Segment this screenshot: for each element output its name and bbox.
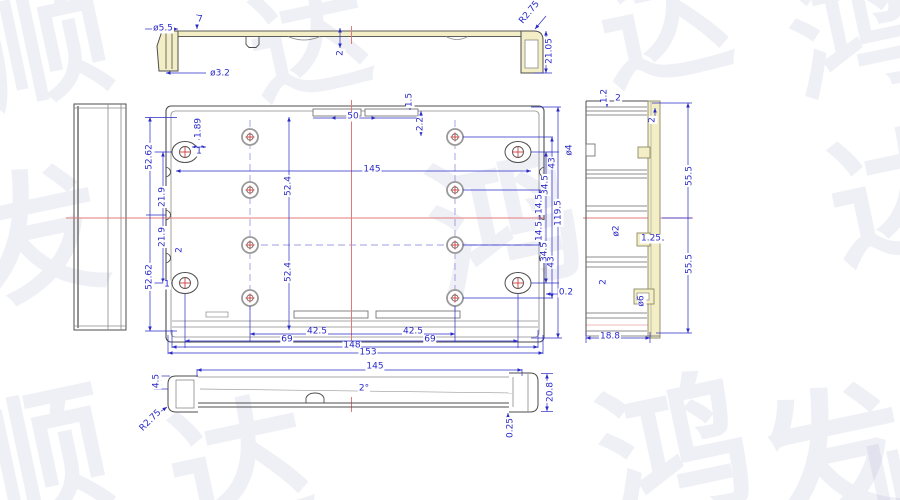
- dimension-label: 52.62: [146, 143, 155, 171]
- dimension-label: 2: [337, 49, 346, 57]
- dimension-label: 1.2: [601, 88, 610, 104]
- dimension-label: 119.5: [555, 199, 564, 227]
- dimension-label: 55.5: [686, 165, 695, 187]
- dimension-label: 21.9: [159, 186, 168, 208]
- dimension-label: 2: [176, 246, 185, 254]
- dimension-label: 4.5: [153, 373, 162, 389]
- dimension-label: 43: [549, 156, 558, 169]
- dimension-label: 52.4: [285, 261, 294, 283]
- dimension-label: 145: [365, 363, 384, 372]
- dimension-label: 2: [649, 116, 658, 124]
- dimension-label: 42.5: [306, 328, 328, 337]
- dimension-label: 0.25: [507, 417, 516, 439]
- dimension-label: 1.25: [640, 235, 662, 244]
- dimension-label: 7: [196, 16, 204, 25]
- dimension-label: 43: [548, 255, 557, 268]
- dimension-label: 1.89: [195, 117, 204, 139]
- dimension-label: 14.5: [536, 220, 545, 242]
- dimension-label: 50: [346, 113, 359, 122]
- cad-drawing-sheet: 顺达达鸿发鸿达顺达鸿发顺: [0, 0, 900, 500]
- dimension-label: 1: [163, 281, 171, 290]
- dimension-label: ø4: [566, 143, 575, 156]
- dimension-label: 21.9: [159, 226, 168, 248]
- dimension-label: 0.2: [558, 289, 574, 298]
- dimension-label: 145: [362, 166, 381, 175]
- dimension-label: 69: [423, 336, 436, 345]
- dimension-label: ø2: [613, 224, 622, 237]
- dimension-label: 2.2: [417, 116, 426, 132]
- dimension-label: 14.5: [536, 193, 545, 215]
- dimension-label: 52.4: [285, 175, 294, 197]
- dimension-label: 52.62: [146, 263, 155, 291]
- dimension-label: 20.8: [547, 381, 556, 403]
- dimension-label: 2: [614, 95, 622, 104]
- dimension-label: 21.05: [546, 37, 555, 65]
- dimension-labels-layer: ø5.57ø3.22R2.7521.0552.6221.921.952.621.…: [0, 0, 900, 500]
- dimension-label: 153: [358, 349, 377, 358]
- dimension-label: R2.75: [517, 0, 542, 27]
- dimension-label: 1: [195, 148, 203, 157]
- dimension-label: 1.5: [406, 92, 415, 108]
- dimension-label: 18.8: [599, 333, 621, 342]
- dimension-label: 55.5: [686, 253, 695, 275]
- dimension-label: 2°: [358, 385, 370, 394]
- dimension-label: 2: [600, 278, 609, 286]
- dimension-label: ø3.2: [209, 70, 231, 79]
- dimension-label: ø5.5: [152, 25, 174, 34]
- dimension-label: 42.5: [402, 328, 424, 337]
- dimension-label: R2.75: [138, 408, 164, 434]
- dimension-label: ø6: [638, 294, 647, 307]
- dimension-label: 69: [280, 336, 293, 345]
